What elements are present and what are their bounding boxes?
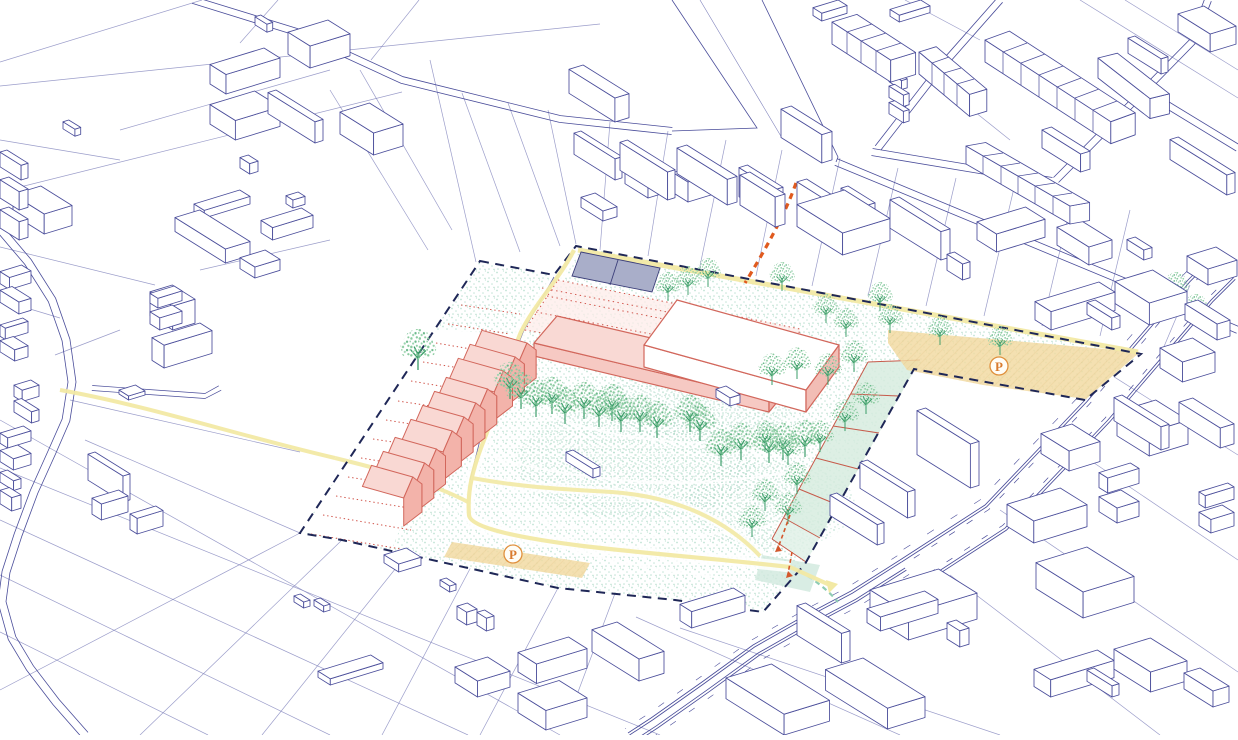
svg-text:P: P — [995, 359, 1003, 374]
svg-text:P: P — [509, 547, 517, 562]
